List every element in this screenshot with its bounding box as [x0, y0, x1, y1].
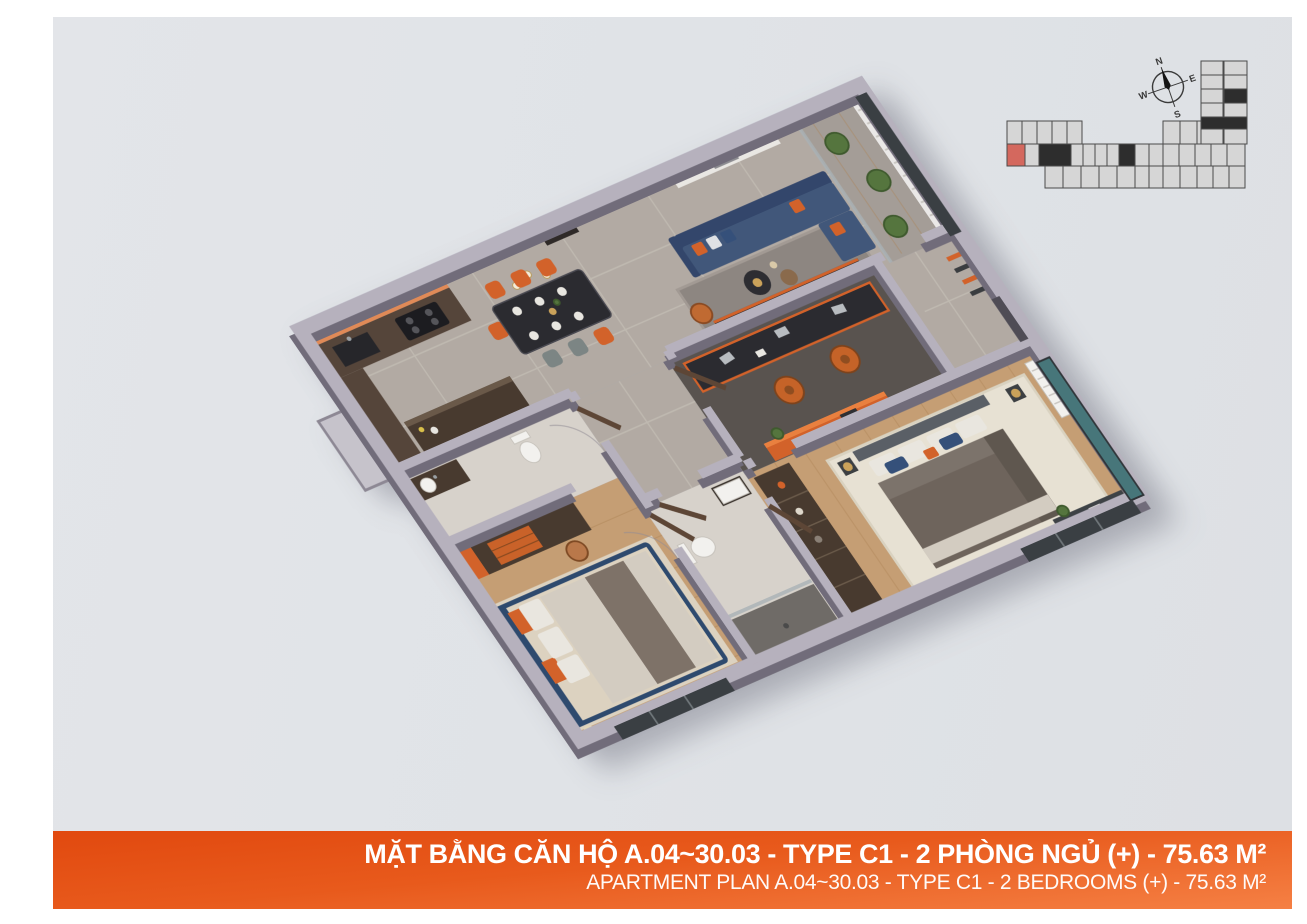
compass-north-label: N [1154, 56, 1164, 69]
locator-units [1007, 61, 1247, 188]
selected-unit-marker [1007, 144, 1025, 166]
compass-icon: N E S W [1133, 50, 1203, 124]
compass-east-label: E [1188, 73, 1198, 85]
compass-west-label: W [1138, 89, 1150, 102]
compass-south-label: S [1173, 109, 1183, 121]
title-banner: MẶT BẰNG CĂN HỘ A.04~30.03 - TYPE C1 - 2… [53, 831, 1292, 909]
compass-needle [1158, 67, 1172, 91]
render-canvas: N E S W MẶT BẰNG CĂN HỘ A.04~30.03 - TYP… [53, 17, 1292, 909]
banner-title-vi: MẶT BẰNG CĂN HỘ A.04~30.03 - TYPE C1 - 2… [53, 839, 1266, 870]
poster-page: N E S W MẶT BẰNG CĂN HỘ A.04~30.03 - TYP… [0, 0, 1307, 924]
banner-title-en: APARTMENT PLAN A.04~30.03 - TYPE C1 - 2 … [53, 870, 1266, 896]
